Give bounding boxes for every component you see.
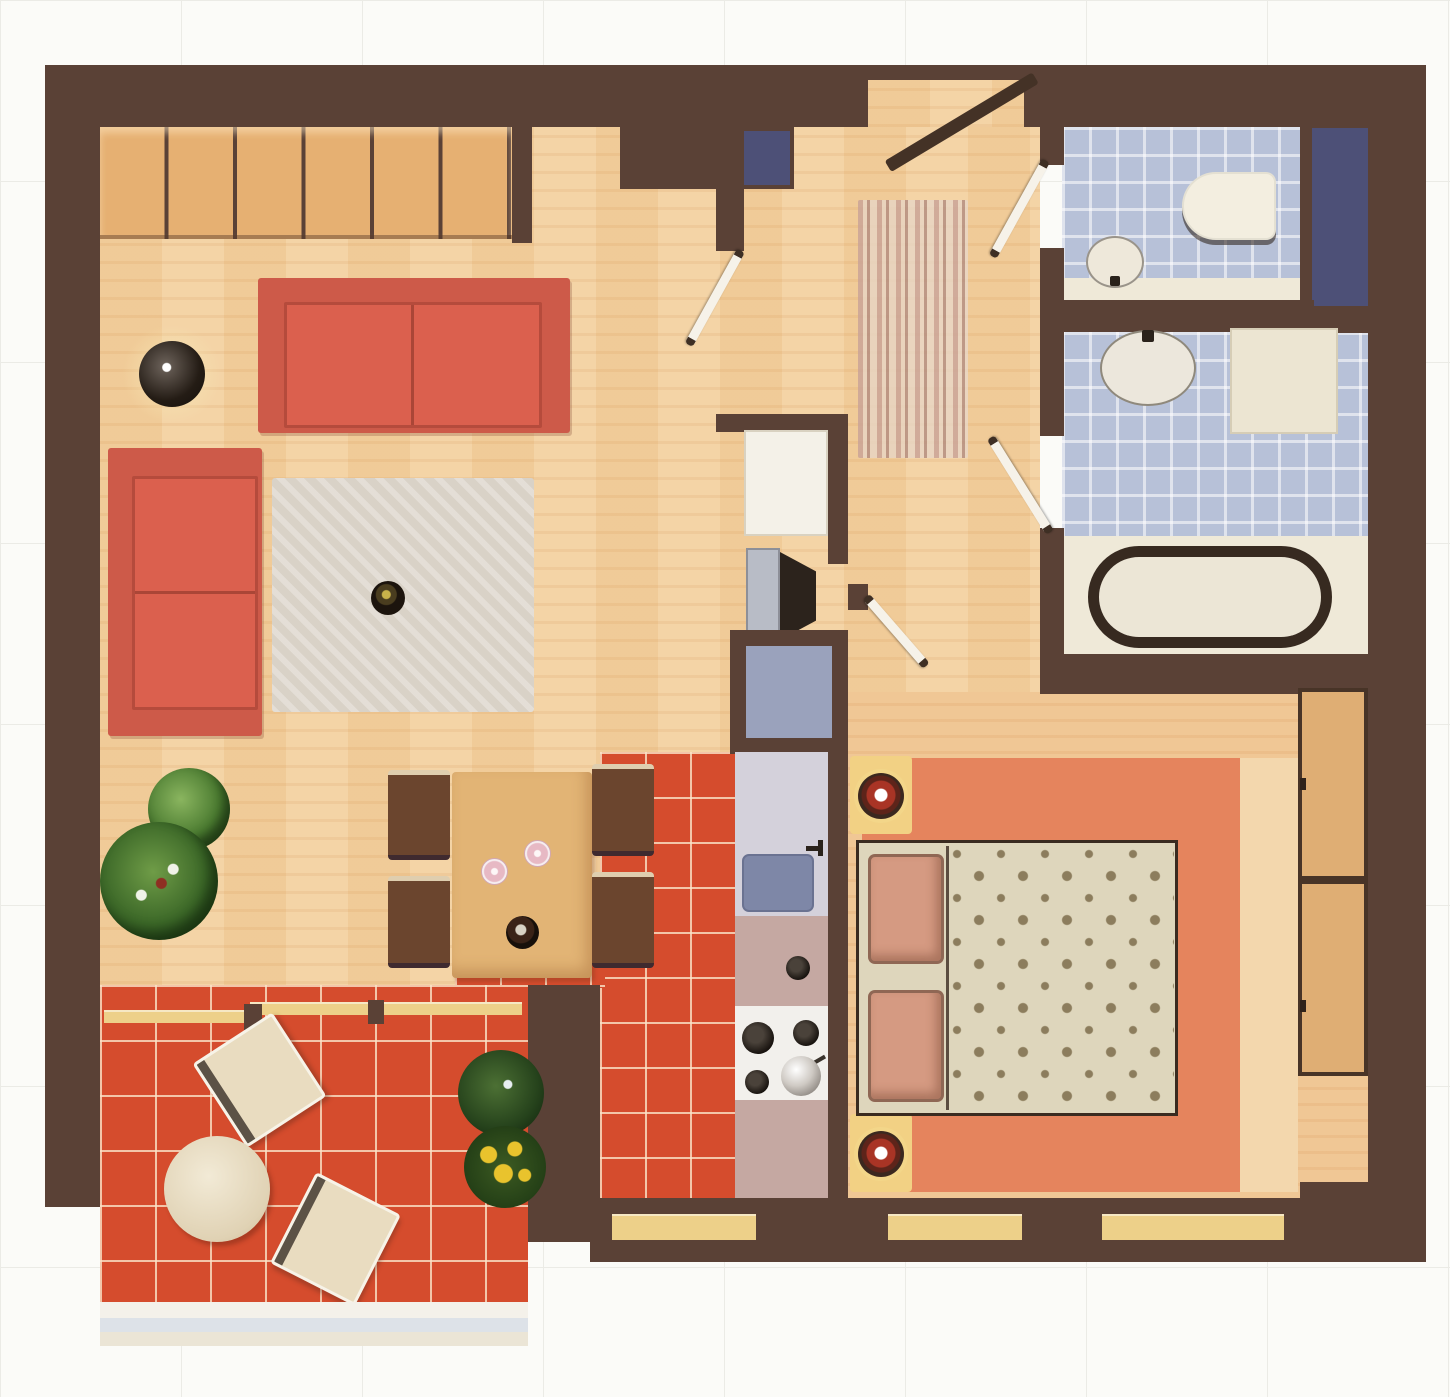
bathtub xyxy=(1088,546,1332,648)
terrace-railing-mid xyxy=(100,1318,528,1332)
wardrobe-handle-2 xyxy=(1300,1000,1306,1012)
window-tick-2 xyxy=(952,1198,966,1210)
sliding-door-handle-2 xyxy=(368,1000,384,1024)
terrace-railing-inner xyxy=(100,1332,528,1346)
navy-cabinet-niche xyxy=(1312,128,1368,306)
window-tick-1 xyxy=(700,1198,714,1210)
counter-knob xyxy=(786,956,810,980)
bathroom-cabinet xyxy=(1230,328,1338,434)
window-mullion-3 xyxy=(1284,1206,1404,1250)
terrace-sliding-door-panel-1 xyxy=(104,1010,250,1023)
bedside-lamp-top xyxy=(858,773,904,819)
wall-top xyxy=(45,65,1426,127)
wall-entry-stub xyxy=(716,189,744,251)
wardrobe-handle-1 xyxy=(1300,778,1306,790)
burner-1 xyxy=(742,1022,774,1054)
burner-2 xyxy=(793,1020,819,1046)
storage-niche-floor xyxy=(746,646,832,738)
bed-pillow-2 xyxy=(868,990,944,1102)
bedroom-wardrobe xyxy=(1298,688,1368,1076)
wall-left xyxy=(45,65,100,1207)
terrace-railing-outer xyxy=(100,1302,528,1318)
tv-screen xyxy=(746,548,780,642)
sofa-small xyxy=(108,448,262,736)
white-cabinet xyxy=(744,430,828,536)
wall-bath-left-4 xyxy=(1040,528,1064,656)
wine-glass-1 xyxy=(481,858,508,885)
floor-plan-canvas xyxy=(0,0,1450,1397)
decorative-bowl xyxy=(371,581,405,615)
window-mullion-2 xyxy=(1022,1206,1102,1250)
sofa-small-seam xyxy=(135,591,255,594)
wall-closet-row xyxy=(100,127,512,239)
dining-chair-1 xyxy=(388,770,450,860)
terrace-sliding-door-panel-2 xyxy=(250,1002,522,1015)
globe-lamp-table xyxy=(139,341,205,407)
bed-duvet xyxy=(946,846,1174,1110)
bedside-lamp-bottom xyxy=(858,1131,904,1177)
dining-chair-3 xyxy=(592,764,654,856)
window-mullion-1 xyxy=(756,1206,888,1250)
sofa-large-seam xyxy=(411,305,414,425)
wall-column-right-a xyxy=(828,414,848,564)
wc-basin-faucet xyxy=(1110,276,1120,286)
terrace-round-table xyxy=(164,1136,270,1242)
serving-bowl xyxy=(506,916,539,949)
entry-wall-niche xyxy=(744,131,790,185)
bathroom-basin-faucet xyxy=(1142,330,1154,342)
wall-bath-left-2 xyxy=(1040,248,1064,300)
large-fern-plant xyxy=(100,822,218,940)
yellow-flower-pot xyxy=(464,1126,546,1208)
kitchen-faucet-stem xyxy=(818,840,823,856)
sofa-large xyxy=(258,278,570,433)
pot xyxy=(781,1056,821,1096)
burner-3 xyxy=(745,1070,769,1094)
wall-bath-left-3 xyxy=(1040,330,1064,436)
kitchen-sink xyxy=(742,854,814,912)
terrace-dark-plant xyxy=(458,1050,544,1136)
dining-chair-2 xyxy=(388,876,450,968)
wall-closet-end-stub xyxy=(512,127,532,243)
dining-chair-4 xyxy=(592,872,654,968)
toilet xyxy=(1182,172,1276,240)
wine-glass-2 xyxy=(524,840,551,867)
hall-runner-rug xyxy=(858,200,968,458)
bed-pillow-1 xyxy=(868,854,944,964)
